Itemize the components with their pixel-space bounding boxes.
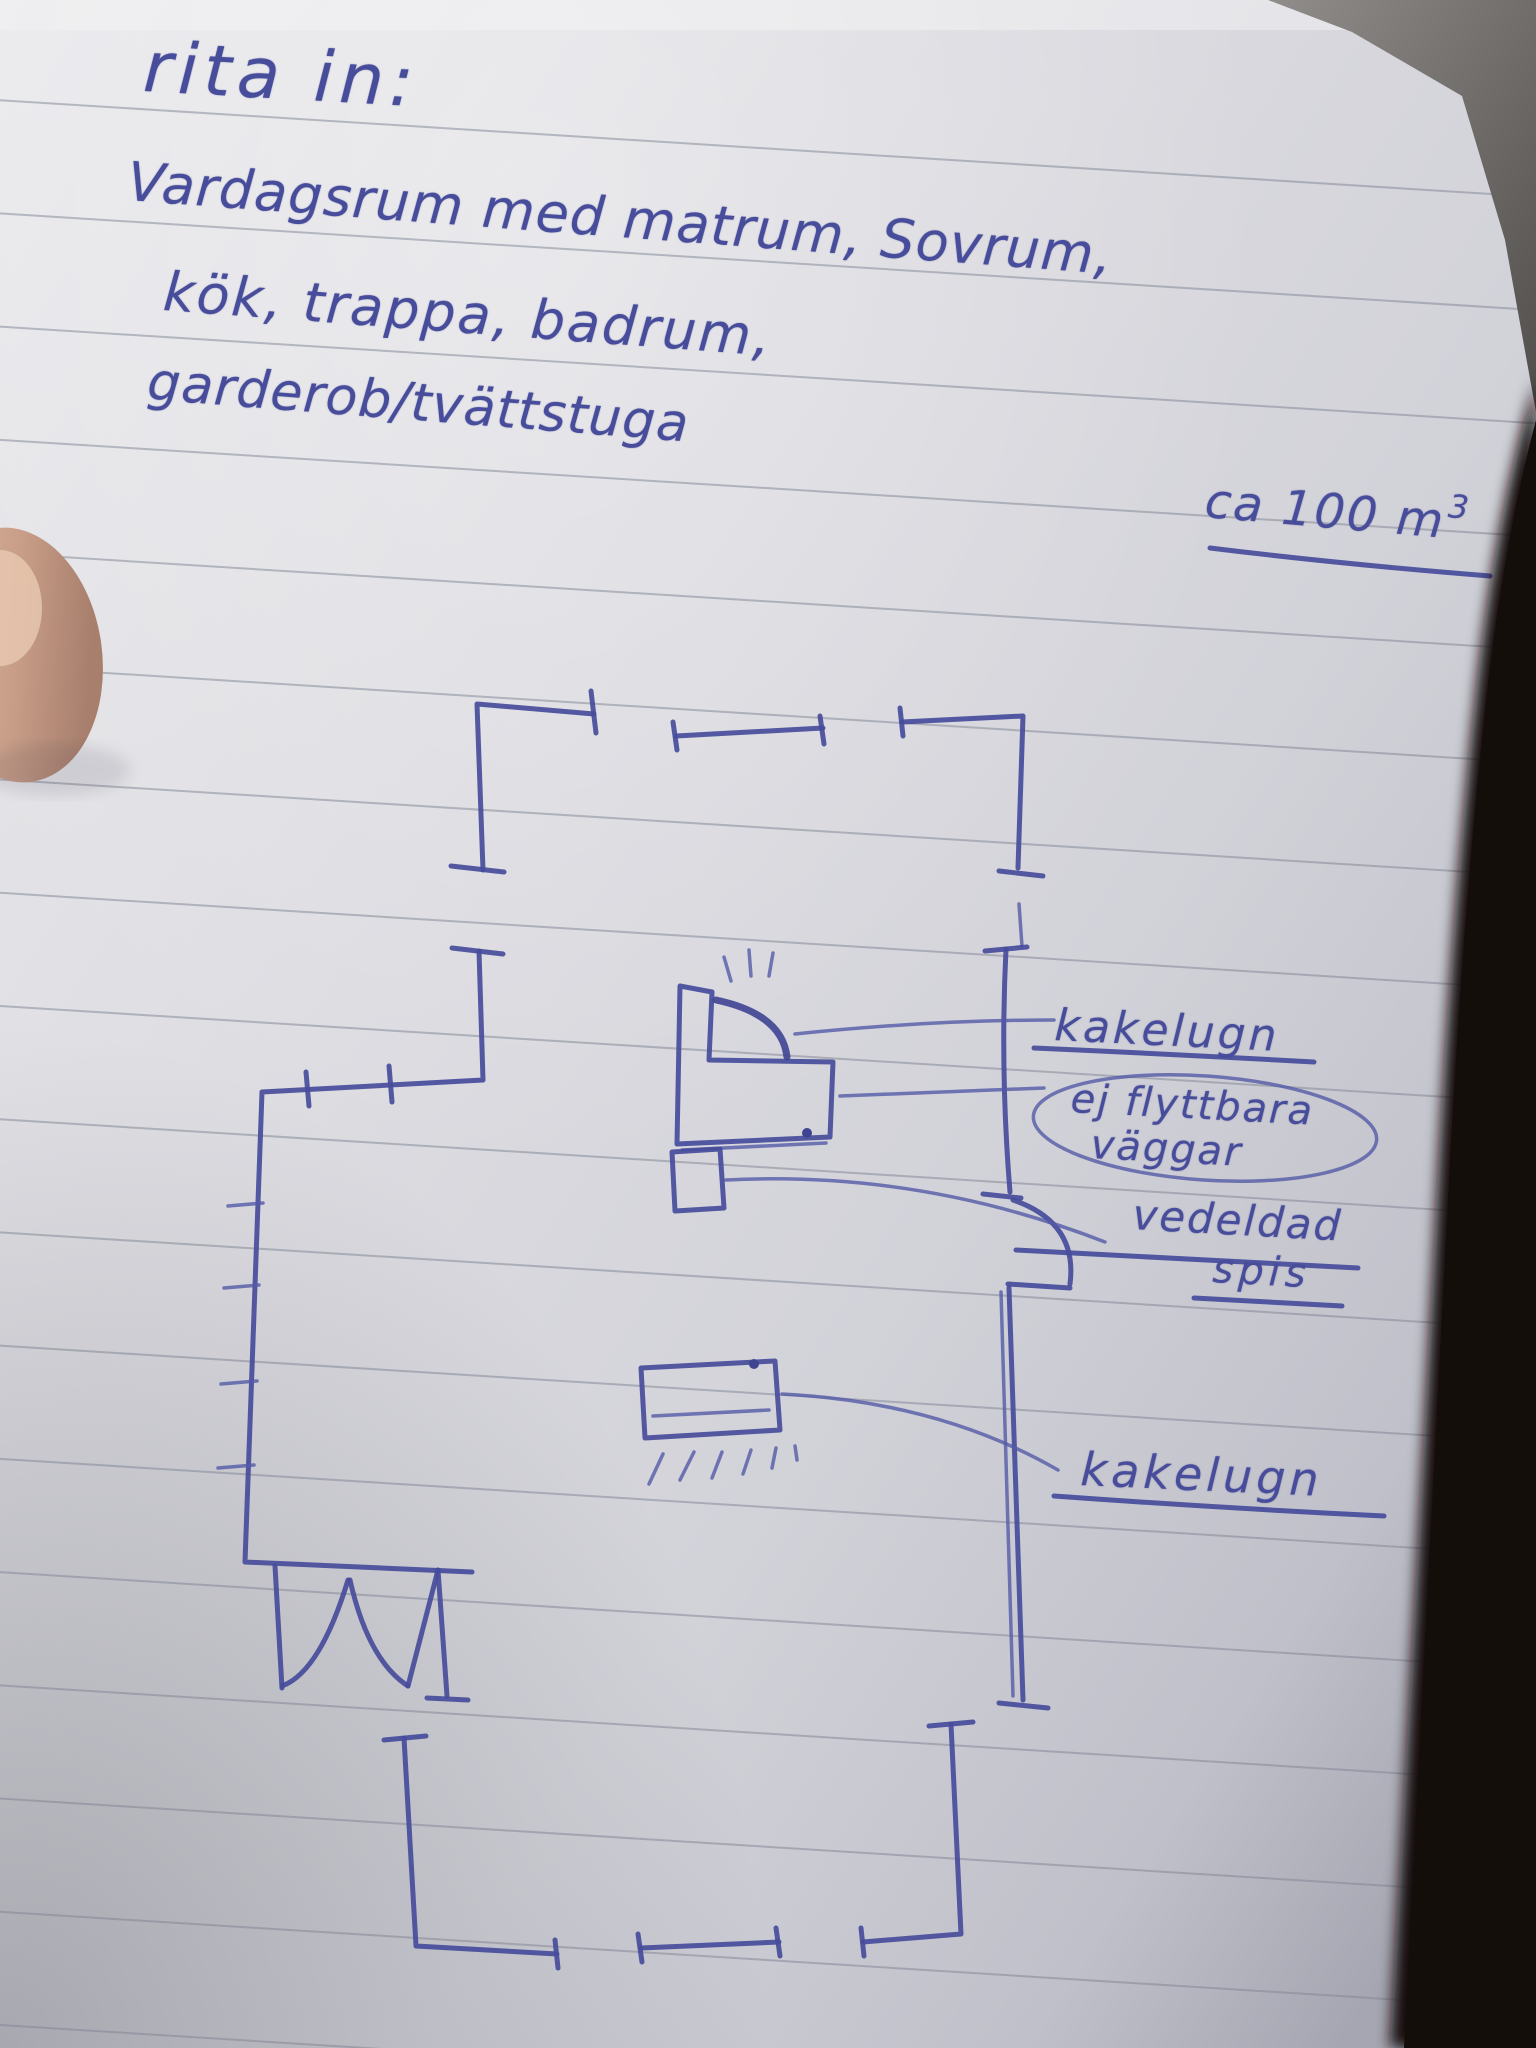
door-end-cap [427,1698,468,1700]
ink-dot [749,1359,759,1369]
note-title: rita in: [141,26,421,123]
ink-dot [802,1128,812,1138]
label-kakelugn-bottom: kakelugn [1080,1442,1324,1507]
heat-ray [749,950,751,976]
wall-hatch-tick [389,1066,392,1102]
heat-ray [795,1446,797,1460]
label-kakelugn-top: kakelugn [1054,1000,1281,1062]
wall-end-tick [861,1928,864,1956]
wall-end-tick [555,1940,558,1968]
notebook-photo: rita in: Vardagsrum med matrum, Sovrum, … [0,0,1536,2048]
label-spis: spis [1211,1246,1312,1297]
area-superscript: 3 [1447,487,1473,527]
wall-hatch-tick [306,1072,309,1106]
label-circled-line2: väggar [1090,1122,1244,1176]
